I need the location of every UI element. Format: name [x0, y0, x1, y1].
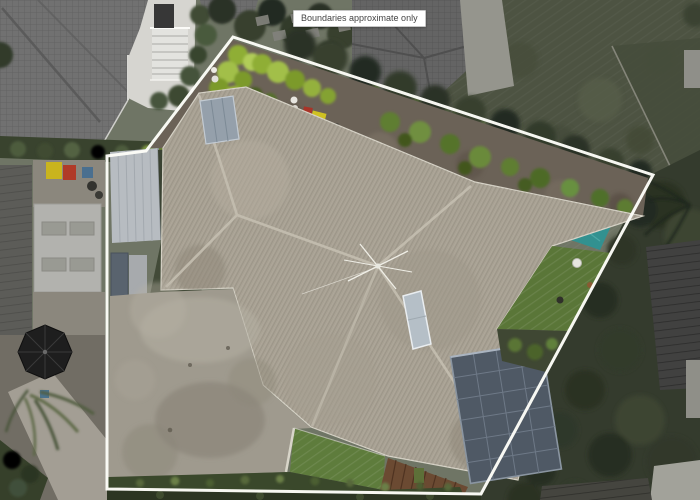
boundary-disclaimer-label: Boundaries approximate only: [293, 10, 426, 27]
shed-roof: [34, 204, 101, 292]
garden-table: [573, 259, 582, 268]
doorway: [154, 4, 174, 28]
far-concrete: [650, 460, 700, 500]
far-structure: [686, 360, 700, 418]
far-structure: [684, 50, 700, 88]
fence-gap-plants: [414, 468, 424, 483]
blue-box: [82, 167, 93, 178]
aerial-photo-canvas: [0, 0, 700, 500]
red-box: [63, 165, 76, 180]
carport: [110, 148, 161, 243]
patio-umbrella: [18, 325, 72, 379]
aerial-photo: Boundaries approximate only: [0, 0, 700, 500]
solar-water-panel: [200, 96, 239, 144]
trailer: [111, 253, 128, 299]
yellow-box: [46, 162, 62, 179]
